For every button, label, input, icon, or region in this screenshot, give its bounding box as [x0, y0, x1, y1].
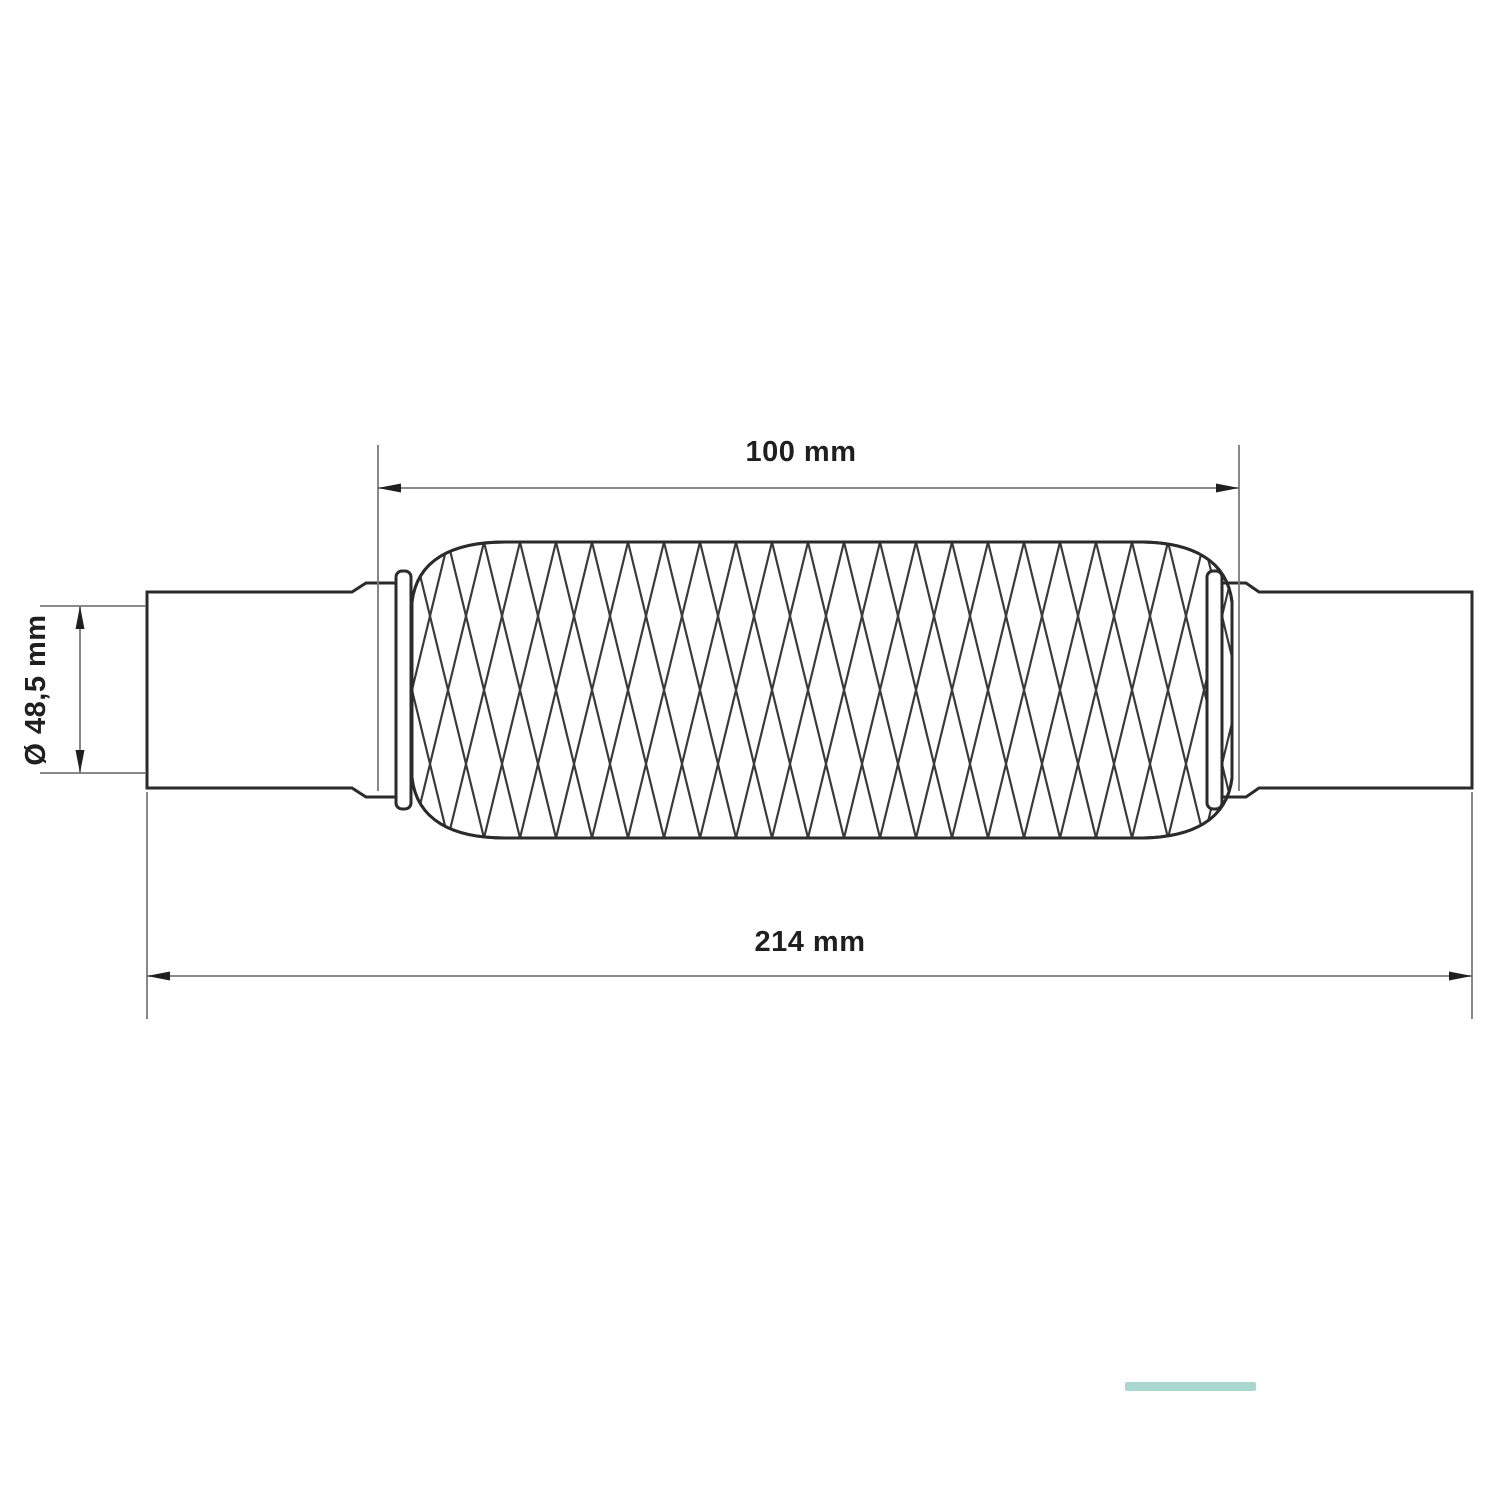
right-pipe — [1221, 583, 1472, 797]
arrow-up-icon — [76, 606, 85, 629]
braid-mesh — [405, 540, 1240, 840]
arrow-right-icon — [1216, 484, 1239, 493]
right-collar — [1207, 571, 1222, 809]
braid-length-label: 100 mm — [745, 436, 856, 468]
arrow-right-icon — [1449, 972, 1472, 981]
flex-pipe-technical-drawing: 100 mm 214 mm Ø 48,5 mm — [0, 0, 1500, 1500]
arrow-left-icon — [378, 484, 401, 493]
total-length-label: 214 mm — [754, 926, 865, 958]
arrow-down-icon — [76, 750, 85, 773]
braided-sleeve-section — [405, 540, 1240, 840]
arrow-left-icon — [147, 972, 170, 981]
left-pipe — [147, 583, 397, 797]
accent-strip — [1125, 1382, 1256, 1391]
flex-pipe-drawing-canvas: 100 mm 214 mm Ø 48,5 mm — [0, 0, 1500, 1500]
diameter-label: Ø 48,5 mm — [20, 614, 52, 765]
left-collar — [396, 571, 411, 809]
dimension-diameter: Ø 48,5 mm — [20, 606, 146, 773]
